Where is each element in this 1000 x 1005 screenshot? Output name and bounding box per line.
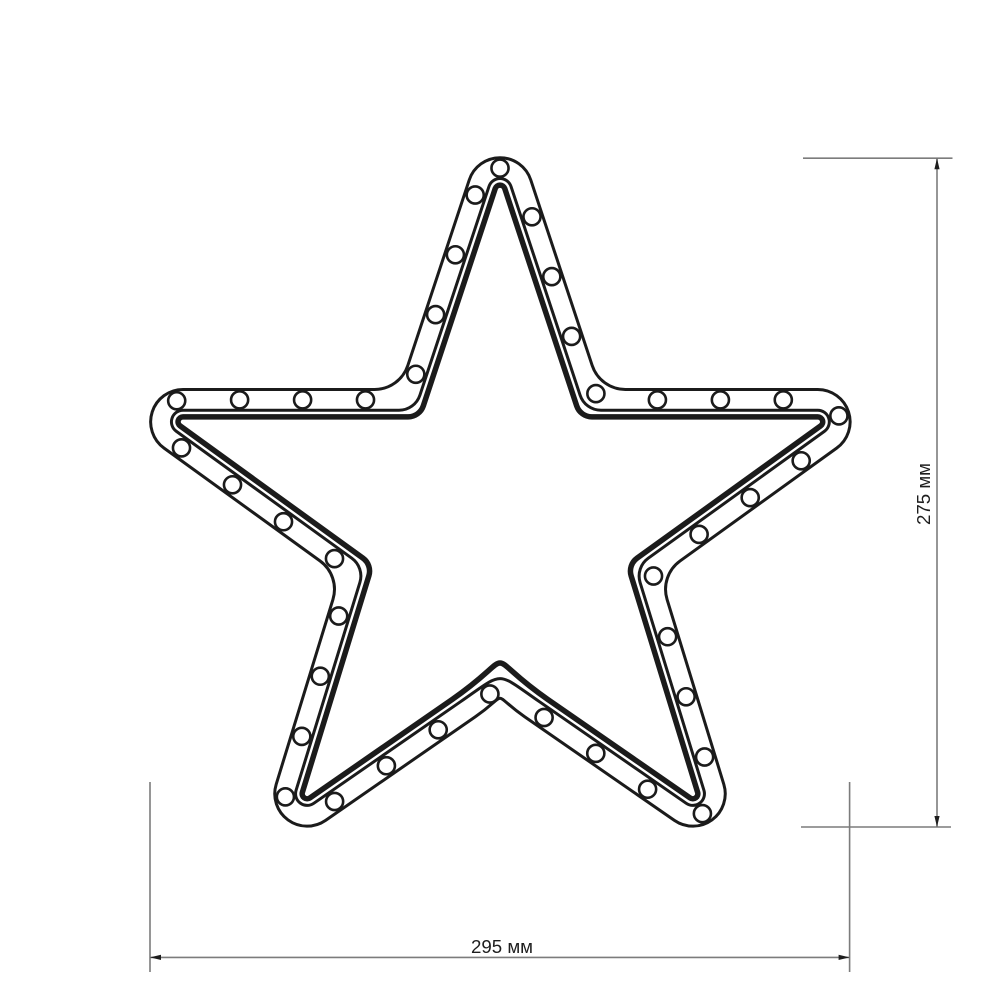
svg-text:295 мм: 295 мм <box>471 936 533 957</box>
svg-text:275 мм: 275 мм <box>913 463 934 525</box>
